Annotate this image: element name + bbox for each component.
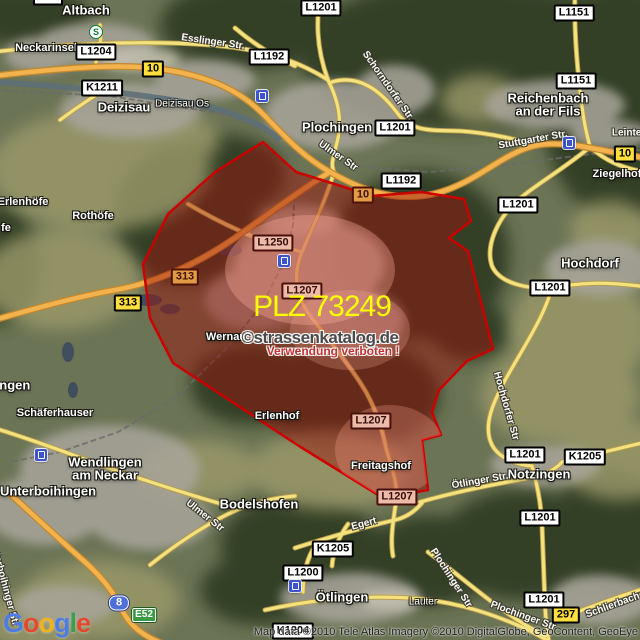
google-logo-letter: g: [54, 608, 70, 638]
road-shield-313: 313: [171, 269, 199, 286]
road-shield-l1151: L1151: [554, 5, 595, 22]
road-shield-l1201: L1201: [504, 447, 545, 464]
road-shield-k1211: K1211: [81, 80, 123, 97]
road-shield-k1205: K1205: [312, 541, 354, 558]
train-station-icon[interactable]: [289, 580, 301, 592]
road-shield-l1201: L1201: [497, 197, 538, 214]
road-shield-l1201: L1201: [374, 120, 415, 137]
place-label: Neckarinsel: [15, 42, 77, 54]
google-logo-letter: o: [23, 608, 39, 638]
road-shield-l1204: L1204: [75, 44, 116, 61]
plz-area-label: PLZ 73249: [253, 290, 391, 324]
road-shield-297: 297: [552, 607, 580, 624]
google-logo: Google: [3, 608, 90, 639]
place-label: Wernau: [206, 331, 246, 343]
place-label: Erlenhof: [255, 410, 300, 422]
place-label: Erlenhöfe: [0, 196, 48, 208]
road-shield-l1192: L1192: [381, 173, 422, 190]
place-label: Lauter: [409, 597, 437, 608]
place-label: ingen: [0, 378, 30, 393]
road-shield-10: 10: [352, 187, 374, 204]
place-label: Schäferhauser: [17, 407, 93, 419]
google-logo-letter: G: [3, 608, 23, 638]
road-shield-10: 10: [614, 146, 636, 163]
place-label: an der Fils: [515, 104, 580, 119]
road-shield-8: 8: [109, 596, 129, 611]
place-label: Unterboihingen: [0, 484, 96, 499]
road-shield-10: 10: [142, 61, 164, 78]
street-label: Leintel: [612, 128, 640, 139]
road-shield-l1201: L1201: [300, 0, 341, 17]
road-shield-l1207: L1207: [350, 413, 391, 430]
sbahn-station-icon[interactable]: S: [89, 25, 103, 39]
road-shield-e52: E52: [132, 608, 156, 622]
place-label: Notzingen: [508, 467, 571, 482]
road-shield-l1201: L1201: [529, 280, 570, 297]
train-station-icon[interactable]: [563, 137, 575, 149]
place-label: Deizisau Os: [155, 99, 209, 110]
road-shield-l1250: L1250: [252, 235, 293, 252]
watermark-warning-text: Verwendung verboten !: [267, 344, 400, 358]
road-shield-k1205: K1205: [564, 449, 606, 466]
map-attribution: Map data ©2010 Tele Atlas Imagery ©2010 …: [254, 626, 638, 638]
place-label: Ötlingen: [316, 590, 369, 605]
road-shield-313: 313: [114, 295, 142, 312]
road-shield-l1207: L1207: [376, 489, 417, 506]
place-label: am Neckar: [72, 468, 138, 483]
map-canvas[interactable]: AltbachNeckarinselDeizisauDeizisau OsPlo…: [0, 0, 640, 640]
place-label: Deizisau: [98, 100, 151, 115]
place-label: Bodelshofen: [220, 497, 299, 512]
google-logo-letter: o: [39, 608, 55, 638]
road-shield-l1201: L1201: [519, 510, 560, 527]
place-label: Hochdorf: [561, 256, 619, 271]
train-station-icon[interactable]: [256, 90, 268, 102]
road-shield-l1200: L1200: [282, 565, 323, 582]
train-station-icon[interactable]: [278, 255, 290, 267]
train-station-icon[interactable]: [35, 449, 47, 461]
road-shield: [33, 0, 63, 6]
place-label: fe: [1, 222, 11, 234]
road-shield-l1151: L1151: [556, 73, 597, 90]
place-label: Altbach: [62, 3, 110, 18]
place-label: Rothöfe: [72, 210, 114, 222]
place-label: Freitagshof: [351, 460, 411, 472]
google-logo-letter: e: [76, 608, 90, 638]
road-shield-l1192: L1192: [249, 49, 290, 66]
place-label: Plochingen: [302, 120, 372, 135]
place-label: Ziegelhof: [593, 168, 640, 180]
